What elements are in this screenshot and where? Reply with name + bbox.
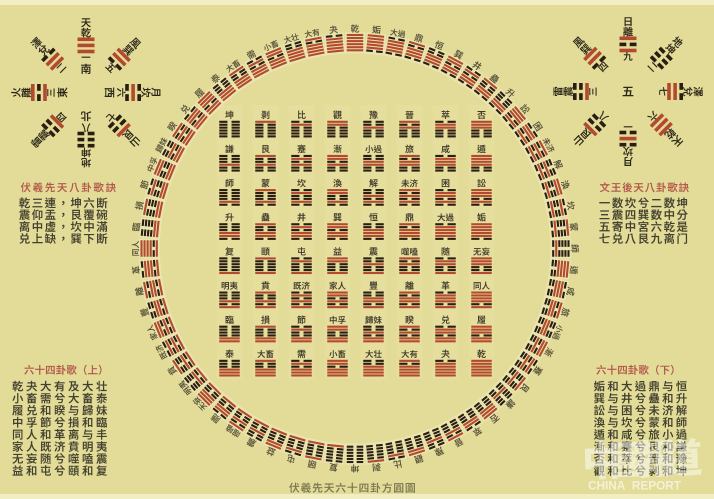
svg-text:CHINA REPORT: CHINA REPORT [588,479,682,493]
